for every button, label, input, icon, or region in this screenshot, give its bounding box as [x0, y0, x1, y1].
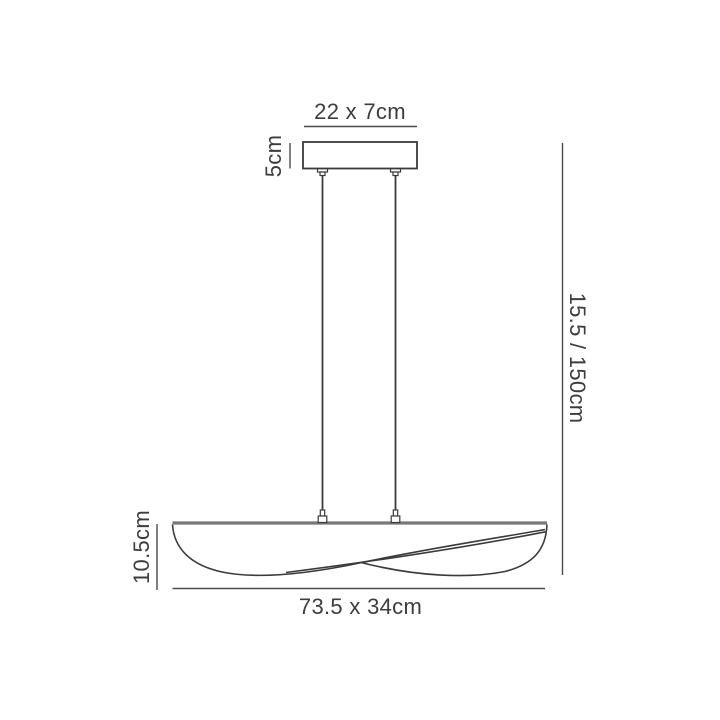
- canopy-width-label: 22 x 7cm: [314, 101, 406, 123]
- shade-left-edge-curve: [173, 525, 546, 576]
- wire-fittings: [318, 169, 401, 523]
- canopy-fitting-right-stub: [393, 172, 398, 176]
- shade-silhouette: [173, 525, 548, 576]
- shade-size-label: 73.5 x 34cm: [299, 596, 422, 618]
- shade-fitting-left: [318, 516, 327, 523]
- shade-fitting-right-stub: [393, 510, 397, 516]
- ceiling-canopy: [303, 142, 417, 169]
- drop-height-label: 15.5 / 150cm: [566, 293, 588, 424]
- shade-fitting-left-stub: [320, 510, 324, 516]
- canopy-height-label: 5cm: [263, 135, 285, 177]
- shade-right-edge-curve: [361, 525, 547, 576]
- shade-height-label: 10.5cm: [131, 510, 153, 584]
- canopy-fitting-left-stub: [320, 172, 325, 176]
- shade-fitting-right: [391, 516, 400, 523]
- pendant-light-dimension-diagram: 22 x 7cm 5cm 15.5 / 150cm 10.5cm 73.5 x …: [0, 0, 720, 720]
